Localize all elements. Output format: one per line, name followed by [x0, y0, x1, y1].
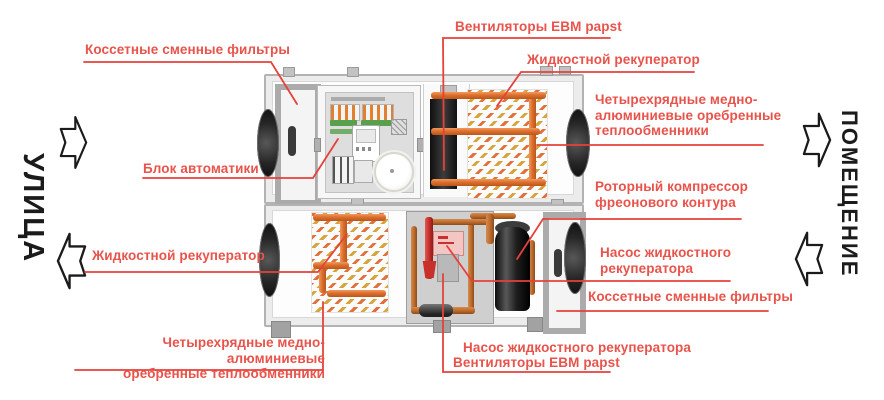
pump-label-mark: [438, 236, 448, 239]
callout-recuperator-pump-right: Насос жидкостного рекуператора: [600, 245, 731, 276]
filter-handle: [554, 249, 562, 277]
callout-fans-bottom: Вентиляторы EBM papst: [453, 355, 620, 371]
callout-fans-top: Вентиляторы EBM papst: [455, 19, 622, 35]
mounting-tab: [347, 67, 359, 77]
copper-pipe: [468, 222, 474, 314]
callout-heat-exchangers-right: Четырехрядные медно- алюминиевые оребрен…: [595, 92, 781, 139]
regulator-center: [390, 169, 394, 173]
fan-opening: [564, 222, 586, 294]
pump-motor: [437, 254, 459, 282]
coil-pipe: [327, 290, 386, 297]
room-label: ПОМЕЩЕНИЕ: [836, 110, 862, 277]
round-regulator: [374, 152, 414, 192]
callout-automation-unit: Блок автоматики: [143, 161, 259, 177]
coil-pipe: [529, 95, 536, 183]
callout-cassette-filters-right: Коссетные сменные фильтры: [588, 289, 793, 305]
street-label: УЛИЦА: [16, 153, 49, 263]
relay-block: [362, 104, 394, 121]
fan-opening: [257, 109, 279, 177]
callout-liquid-recuperator-top: Жидкостной рекуператор: [527, 52, 700, 68]
coil-pipe: [340, 219, 347, 265]
expansion-vessel: [419, 304, 453, 317]
ahu-diagram: УЛИЦА ПОМЕЩЕНИЕ: [0, 0, 884, 400]
callout-liquid-recuperator-left: Жидкостной рекуператор: [92, 248, 265, 264]
rotary-compressor: [495, 227, 530, 311]
coil-pipe: [313, 214, 386, 221]
exhaust-outlet-arrow-icon: [56, 229, 87, 293]
callout-cassette-filters-top: Коссетные сменные фильтры: [85, 42, 290, 58]
coil-pipe: [313, 262, 349, 269]
callout-rotary-compressor: Роторный компрессор фреонового контура: [595, 179, 748, 210]
controller-display: [356, 129, 376, 143]
copper-pipe: [486, 214, 494, 244]
unit-foot: [433, 320, 451, 333]
wiring-symbol: [391, 119, 407, 135]
mounting-tab: [540, 66, 553, 76]
supply-fan: [430, 99, 457, 189]
relay-block: [330, 104, 360, 121]
pump-label-mark: [438, 242, 454, 244]
copper-pipe: [411, 226, 417, 314]
fan-opening: [566, 109, 590, 177]
coil-pipe: [319, 266, 326, 293]
return-from-room-arrow-icon: [788, 230, 830, 288]
coil-pipe: [431, 128, 540, 135]
supply-inlet-arrow-icon: [59, 111, 88, 174]
coil-pipe: [431, 92, 546, 99]
callout-recuperator-pump-bottom: Насос жидкостного рекуператора: [463, 340, 691, 356]
circuit-breakers: [332, 156, 354, 184]
mounting-tab: [283, 67, 295, 77]
callout-heat-exchangers-bottom: Четырехрядные медно-алюминиевые оребренн…: [73, 335, 325, 382]
supply-to-room-arrow-icon: [796, 111, 838, 169]
door-latch: [314, 138, 321, 152]
coil-pipe: [431, 179, 546, 186]
contactor: [354, 160, 373, 183]
copper-pipe: [428, 219, 488, 225]
din-rail: [331, 97, 385, 101]
unit-foot: [527, 317, 543, 332]
filter-handle: [288, 126, 296, 156]
controller-buttons: [356, 147, 374, 151]
